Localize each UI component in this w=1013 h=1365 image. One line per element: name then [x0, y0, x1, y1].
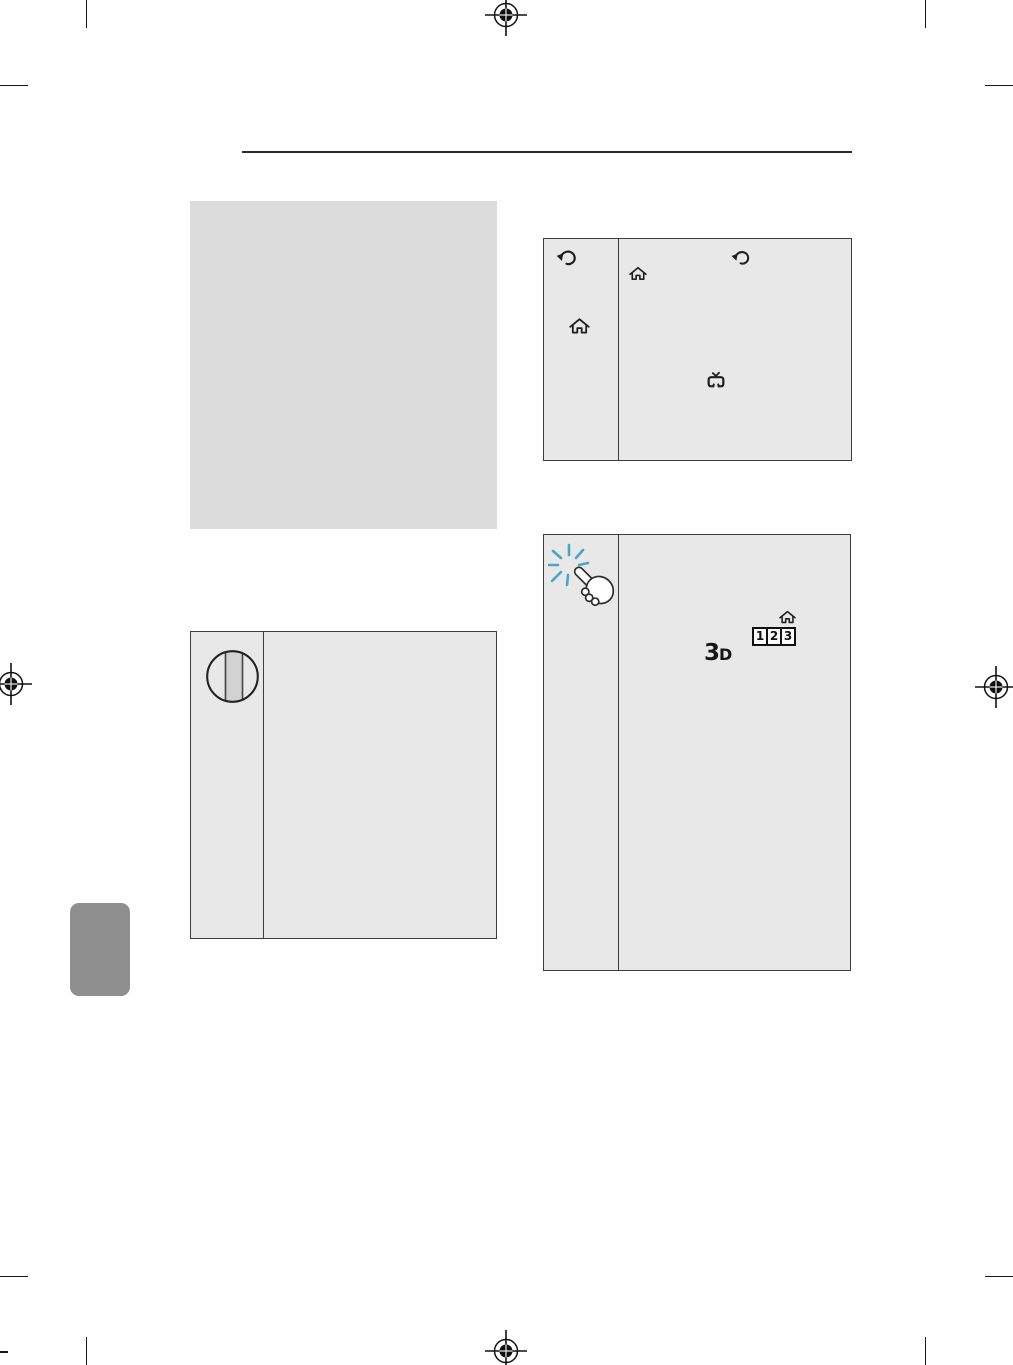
language-tab — [70, 903, 130, 996]
tv-icon — [704, 368, 728, 390]
registration-mark-icon — [974, 665, 1013, 709]
trim-mark-top-right-h — [985, 85, 1013, 86]
trim-mark-bottom-left-h — [0, 1276, 28, 1277]
manual-page: 1 2 3 3D — [0, 0, 1013, 1365]
3d-icon-digit: 3 — [704, 640, 719, 666]
registration-mark-icon — [484, 1329, 528, 1365]
wheel-panel — [190, 631, 497, 939]
panel-divider — [618, 239, 619, 460]
remote-panel — [543, 238, 852, 461]
magic-pointer-hand-icon — [548, 541, 624, 625]
3d-icon-letter: D — [719, 645, 732, 664]
magic-remote-panel: 1 2 3 3D — [543, 534, 851, 971]
back-icon — [555, 247, 581, 269]
home-icon — [778, 609, 797, 626]
registration-mark-icon — [0, 662, 33, 706]
registration-mark-icon — [484, 0, 528, 37]
numbers-123-icon: 1 2 3 — [752, 627, 794, 646]
number-cell: 3 — [780, 627, 796, 646]
trim-mark-top-left-v — [86, 0, 87, 28]
trim-mark-top-right-v — [925, 0, 926, 28]
wheel-button-icon — [204, 648, 261, 705]
home-icon — [628, 265, 648, 283]
back-icon — [730, 248, 754, 268]
trim-mark-bottom-left-edge — [0, 1351, 8, 1353]
trim-mark-bottom-right-v — [925, 1337, 926, 1365]
trim-mark-bottom-left-v — [86, 1337, 87, 1365]
3d-icon: 3D — [704, 640, 732, 666]
trim-mark-bottom-right-h — [985, 1276, 1013, 1277]
section-rule — [242, 151, 852, 153]
trim-mark-top-left-h — [0, 85, 28, 86]
placeholder-block — [190, 201, 497, 529]
home-icon — [568, 316, 591, 337]
panel-divider — [263, 632, 264, 938]
